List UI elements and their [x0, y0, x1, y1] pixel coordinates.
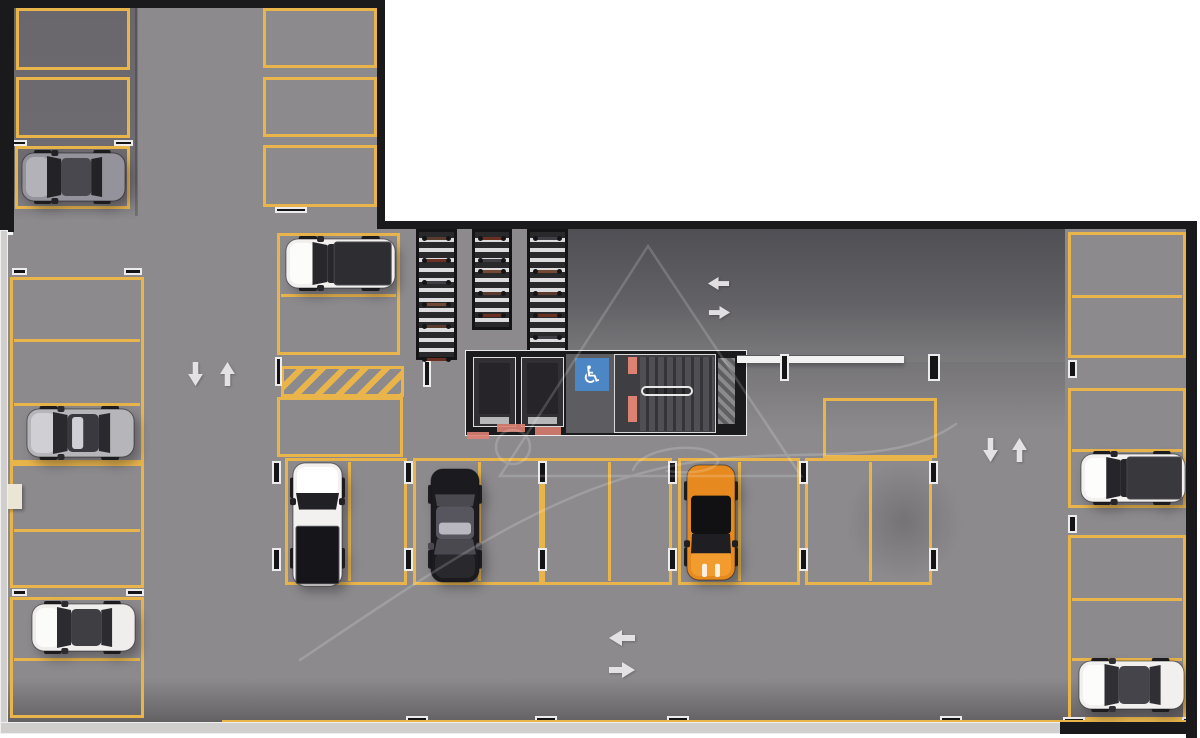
car-silver-sedan-graphic — [25, 405, 137, 461]
bike-wheel — [422, 357, 427, 362]
wall-right-upper-wing — [377, 0, 385, 229]
bike-wheel — [478, 236, 483, 241]
bike-frame — [425, 358, 448, 361]
structural-post — [423, 360, 431, 387]
bike-wheel — [533, 269, 538, 274]
wall-bottom-right — [1060, 722, 1197, 734]
bike-icon — [478, 257, 506, 264]
arrow-upper-right-right — [708, 306, 731, 319]
arrow-bottom-right — [608, 662, 636, 678]
bike-wheel — [446, 302, 451, 307]
floor-drive-dark — [563, 229, 1065, 362]
no-parking-zone — [281, 366, 404, 397]
bike-wheel — [446, 324, 451, 329]
car-gray-hatchback — [20, 149, 128, 205]
parking-space-group-nook-space-2 — [16, 77, 130, 138]
wall-top-upper-wing — [0, 0, 385, 8]
car-white-pickup — [289, 461, 346, 589]
bike-wheel — [422, 280, 427, 285]
structural-post — [1068, 515, 1077, 533]
bike-icon — [478, 235, 506, 242]
bike-wheel — [446, 357, 451, 362]
elevator-cab-2 — [521, 357, 564, 427]
car-white-suv-roofbox — [284, 235, 398, 292]
bike-wheel — [501, 291, 506, 296]
car-white-pickup-graphic — [289, 461, 346, 589]
parking-space-group-mid-row-group-c — [542, 458, 672, 585]
down-arrow-icon — [188, 362, 203, 386]
elevator-interior — [527, 363, 558, 414]
bike-wheel — [557, 269, 562, 274]
bike-icon — [533, 312, 562, 319]
bike-frame — [481, 292, 503, 295]
car-white-suv-bed — [1079, 450, 1188, 506]
structural-post — [124, 268, 142, 275]
bike-frame — [425, 303, 448, 306]
column-pillar — [7, 484, 22, 509]
arrow-right-aisle-up — [1012, 438, 1027, 462]
bike-frame — [536, 270, 559, 273]
elevator-door-sill — [480, 417, 509, 424]
car-white-suv-roofbox-graphic — [284, 235, 398, 292]
beam-post — [780, 354, 789, 381]
structural-post — [404, 548, 413, 571]
parking-space-group-col2-top-space-2 — [263, 77, 377, 137]
bike-wheel — [557, 335, 562, 340]
bike-wheel — [446, 258, 451, 263]
wall-beam — [737, 355, 904, 363]
bike-icon — [533, 268, 562, 275]
bike-frame — [481, 259, 503, 262]
space-divider — [14, 529, 140, 532]
space-divider — [14, 658, 140, 661]
bike-frame — [425, 281, 448, 284]
parking-space-group-col2-parallel-space — [277, 397, 403, 457]
car-white-suv-bed-graphic — [1079, 450, 1188, 506]
arrow-aisle-left-down — [188, 362, 203, 386]
structural-post — [272, 461, 281, 484]
parking-space-group-col2-top-space-1 — [263, 8, 377, 68]
beam-post — [928, 354, 940, 381]
bike-wheel — [446, 280, 451, 285]
car-white-crossover — [30, 600, 138, 655]
car-white-sedan — [1077, 657, 1187, 713]
bike-frame — [536, 292, 559, 295]
bike-icon — [422, 257, 451, 264]
bike-frame — [536, 336, 559, 339]
right-arrow-icon — [608, 662, 636, 678]
car-orange-coupe-graphic — [683, 462, 739, 582]
bike-wheel — [533, 291, 538, 296]
down-arrow-icon — [983, 438, 998, 462]
car-black-sedan — [427, 466, 483, 584]
wall-left-lower — [0, 230, 8, 724]
bike-rack-3 — [527, 229, 568, 358]
structural-post — [538, 548, 547, 571]
structural-post — [275, 357, 282, 386]
space-divider — [348, 462, 351, 581]
structural-post — [126, 589, 144, 596]
bike-wheel — [501, 258, 506, 263]
parking-space-group-lobby-side-space — [823, 398, 937, 458]
wall-right — [1186, 221, 1197, 738]
structural-post — [12, 140, 27, 146]
bike-wheel — [422, 258, 427, 263]
parking-space-group-left-col-group-2 — [10, 463, 144, 588]
space-divider — [281, 294, 396, 297]
arrow-aisle-left-up — [220, 362, 235, 386]
space-divider — [869, 462, 872, 581]
structural-post — [1068, 360, 1077, 378]
bike-frame — [481, 237, 503, 240]
bike-frame — [425, 325, 448, 328]
parking-space-group-right-col-group-1 — [1068, 232, 1186, 358]
bike-icon — [422, 301, 451, 308]
elevator-floor-mark — [467, 432, 489, 439]
elevator-floor-mark — [535, 427, 561, 435]
parking-space-group-nook-space-1 — [16, 8, 130, 70]
wall-bottom-left — [0, 722, 1062, 734]
bike-wheel — [478, 258, 483, 263]
structural-post — [275, 207, 307, 213]
bike-wheel — [422, 236, 427, 241]
bike-wheel — [478, 313, 483, 318]
wall-top-lower-wing — [377, 221, 1192, 229]
structural-post — [799, 548, 808, 571]
bike-frame — [425, 259, 448, 262]
bike-wheel — [533, 335, 538, 340]
left-arrow-icon — [707, 277, 730, 290]
structural-post — [272, 548, 281, 571]
bike-wheel — [557, 313, 562, 318]
bike-wheel — [446, 236, 451, 241]
car-white-crossover-graphic — [30, 600, 138, 655]
stair-red-stripe — [628, 357, 637, 374]
car-white-sedan-graphic — [1077, 657, 1187, 713]
car-black-sedan-graphic — [427, 466, 483, 584]
bike-wheel — [557, 236, 562, 241]
stair-red-stripe — [628, 396, 637, 422]
bike-frame — [481, 314, 503, 317]
stair-railing — [641, 386, 693, 396]
bike-wheel — [533, 313, 538, 318]
structural-post — [404, 461, 413, 484]
structural-post — [538, 461, 547, 484]
space-divider — [14, 339, 140, 342]
bike-rack-1 — [416, 229, 457, 360]
structural-post — [12, 589, 27, 596]
bike-wheel — [501, 313, 506, 318]
structural-post — [668, 548, 677, 571]
up-arrow-icon — [1012, 438, 1027, 462]
structural-post — [799, 461, 808, 484]
bike-wheel — [478, 269, 483, 274]
bike-frame — [481, 270, 503, 273]
elevator-door-sill — [528, 417, 557, 424]
floor-bottom-shadow — [8, 678, 1186, 722]
arrow-bottom-left — [608, 630, 636, 646]
elevator-cab-1 — [473, 357, 516, 427]
bike-frame — [536, 237, 559, 240]
bike-wheel — [422, 302, 427, 307]
right-arrow-icon — [708, 306, 731, 319]
car-gray-hatchback-graphic — [20, 149, 128, 205]
bike-wheel — [422, 324, 427, 329]
elevator-floor-mark — [497, 424, 525, 432]
bike-frame — [425, 237, 448, 240]
bike-wheel — [478, 291, 483, 296]
bike-rack-2 — [472, 229, 512, 330]
bike-icon — [422, 235, 451, 242]
nook-edge-shadow — [135, 8, 138, 216]
space-divider — [608, 462, 611, 581]
car-silver-sedan — [25, 405, 137, 461]
structural-post — [114, 140, 133, 146]
bike-icon — [478, 268, 506, 275]
bike-icon — [533, 235, 562, 242]
accessible-icon: ♿ — [575, 358, 609, 391]
garage-floor-plan: ♿ — [0, 0, 1200, 738]
bike-icon — [533, 334, 562, 341]
bike-wheel — [533, 236, 538, 241]
structural-post — [929, 548, 938, 571]
structural-post — [12, 268, 27, 275]
bike-icon — [422, 323, 451, 330]
wall-left-upper — [0, 0, 14, 232]
bike-wheel — [501, 236, 506, 241]
structural-post — [668, 461, 677, 484]
structural-post — [929, 461, 938, 484]
parking-space-group-mid-row-group-e — [805, 458, 932, 585]
bike-icon — [422, 356, 451, 363]
up-arrow-icon — [220, 362, 235, 386]
utility-shaft — [716, 356, 737, 426]
car-orange-coupe — [683, 462, 739, 582]
elevator-interior — [479, 363, 510, 414]
space-divider — [1072, 598, 1182, 601]
bike-icon — [422, 279, 451, 286]
arrow-right-aisle-down — [983, 438, 998, 462]
bike-icon — [478, 312, 506, 319]
space-divider — [1072, 295, 1182, 298]
bike-wheel — [501, 269, 506, 274]
bike-icon — [533, 290, 562, 297]
left-arrow-icon — [608, 630, 636, 646]
bike-frame — [536, 314, 559, 317]
arrow-upper-right-left — [707, 277, 730, 290]
bike-wheel — [557, 291, 562, 296]
parking-space-group-col2-top-space-3 — [263, 145, 377, 207]
bike-icon — [478, 290, 506, 297]
